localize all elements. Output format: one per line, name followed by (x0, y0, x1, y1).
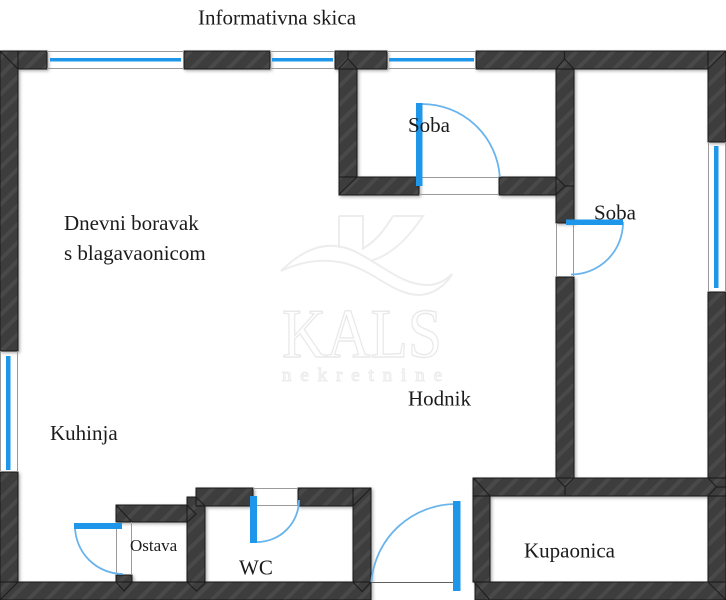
svg-text:s blagavaonicom: s blagavaonicom (64, 241, 206, 265)
svg-text:Kuhinja: Kuhinja (50, 421, 118, 445)
svg-text:Dnevni boravak: Dnevni boravak (64, 211, 199, 235)
svg-text:Ostava: Ostava (130, 536, 178, 555)
svg-text:KALS: KALS (282, 296, 442, 373)
svg-text:Soba: Soba (408, 113, 451, 137)
svg-text:Hodnik: Hodnik (408, 387, 472, 411)
svg-text:Kupaonica: Kupaonica (524, 539, 616, 563)
svg-text:Informativna skica: Informativna skica (198, 6, 357, 30)
svg-text:WC: WC (239, 556, 273, 580)
svg-text:Soba: Soba (594, 201, 637, 225)
